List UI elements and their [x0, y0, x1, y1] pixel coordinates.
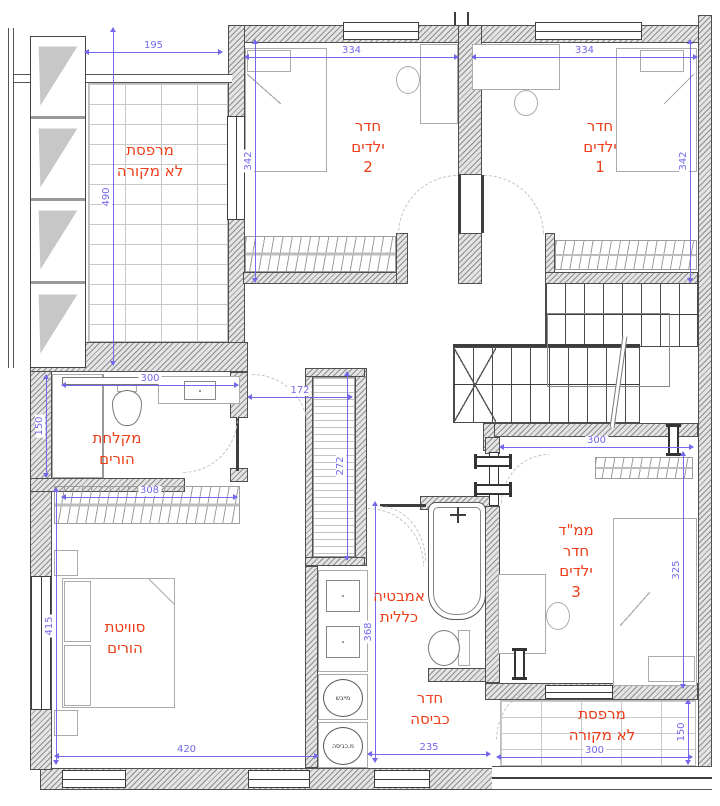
dryer: מייבש	[323, 679, 363, 717]
toilet	[112, 390, 142, 426]
window	[31, 576, 51, 710]
room-label-mamad-kids-3: ממ"ד חדר ילדים 3	[538, 520, 614, 603]
toilet	[428, 630, 460, 666]
pillow	[247, 50, 291, 72]
mamad-steel-fitting-icon	[514, 648, 525, 680]
dimension-mamad-width: 300	[500, 447, 693, 448]
desk	[472, 44, 560, 90]
room-label-balcony-top-left: מרפסת לא מקורה	[95, 140, 205, 181]
floor-plan: מייבש מ.כביסה 195 490 334 342 334 342 30…	[0, 0, 720, 806]
stairs-start-cross	[454, 348, 496, 422]
mamad-window	[545, 685, 613, 699]
dimension-mamad-height: 325	[683, 452, 684, 688]
balcony-tile-floor	[88, 83, 228, 342]
room-label-kids-2: חדר ילדים 2	[330, 116, 406, 178]
washing-machine: מ.כביסה	[323, 727, 363, 765]
dimension-wardrobe-width: 308	[62, 497, 237, 498]
door-swing-arc	[484, 175, 544, 235]
closet	[595, 457, 693, 479]
dimension-kids2-height: 342	[255, 40, 256, 282]
wall	[458, 233, 482, 284]
stairwell-opening-outline	[547, 313, 670, 387]
dimension-balcony-br-height: 150	[688, 700, 689, 764]
faucet-cross	[457, 507, 459, 523]
room-label-bathroom: אמבטיה כללית	[358, 586, 440, 627]
door-swing-arc	[380, 506, 426, 562]
dimension-suite-width: 420	[55, 756, 318, 757]
washer-label: מ.כביסה	[332, 743, 354, 750]
pillow	[640, 50, 684, 72]
chair	[546, 602, 570, 630]
window	[62, 770, 126, 788]
pergola-divider	[31, 198, 85, 201]
blanket-fold	[247, 74, 281, 104]
dimension-bath-height: 368	[375, 502, 376, 762]
dimension-kids1-height: 342	[690, 40, 691, 282]
dimension-laundry-width: 235	[368, 754, 490, 755]
door-swing-arc	[182, 417, 238, 473]
closet-shelves	[313, 377, 355, 557]
room-label-laundry: חדר כביסה	[395, 688, 465, 729]
dimension-balcony-height: 490	[113, 28, 114, 365]
wall	[305, 566, 318, 768]
wall	[355, 368, 367, 566]
dimension-suite-height: 415	[56, 488, 57, 764]
roof-tick	[454, 12, 456, 25]
sink	[326, 626, 360, 658]
chair	[396, 66, 420, 94]
blanket-fold	[148, 578, 175, 605]
door-swing-arc	[252, 374, 308, 428]
dimension-balcony-br-width: 300	[497, 757, 692, 758]
parapet-mid-line	[492, 777, 712, 779]
closet	[555, 240, 697, 270]
door-swing-arc	[398, 175, 458, 235]
dimension-kids1-width: 334	[472, 57, 697, 58]
nightstand	[54, 550, 78, 576]
wall	[698, 15, 712, 790]
blanket-fold	[620, 592, 650, 626]
nightstand	[54, 710, 78, 736]
dimension-kids2-width: 334	[245, 57, 458, 58]
mamad-steel-fitting-icon	[474, 484, 512, 495]
dryer-label: מייבש	[336, 695, 350, 702]
roof-tick	[467, 12, 469, 25]
dimension-shower-height: 150	[46, 375, 47, 477]
wall	[230, 468, 248, 482]
dimension-closet-width: 172	[248, 397, 352, 398]
pergola-divider	[31, 116, 85, 119]
window	[374, 770, 430, 788]
mamad-steel-fitting-icon	[668, 424, 679, 456]
wall	[305, 557, 365, 566]
room-label-kids-1: חדר ילדים 1	[562, 116, 638, 178]
room-label-balcony-bottom-right: מרפסת לא מקורה	[558, 704, 646, 745]
dimension-closet-height: 272	[347, 372, 348, 560]
mamad-steel-fitting-icon	[474, 456, 512, 467]
sink	[326, 580, 360, 612]
dimension-shower-width: 300	[62, 385, 238, 386]
wall	[396, 233, 408, 284]
pillow	[648, 656, 695, 682]
window	[535, 22, 642, 40]
sink	[184, 381, 216, 400]
room-label-parents-shower: מקלחת הורים	[72, 428, 162, 469]
chair	[514, 90, 538, 116]
pergola-divider	[31, 281, 85, 284]
room-label-parents-suite: סוויטת הורים	[85, 617, 165, 658]
closet	[245, 236, 396, 272]
window	[248, 770, 310, 788]
wall	[243, 272, 408, 284]
wall	[305, 368, 365, 377]
desk	[420, 44, 458, 124]
door-leaf	[458, 175, 461, 233]
dimension-balcony-width: 195	[85, 52, 222, 53]
window	[343, 22, 419, 40]
